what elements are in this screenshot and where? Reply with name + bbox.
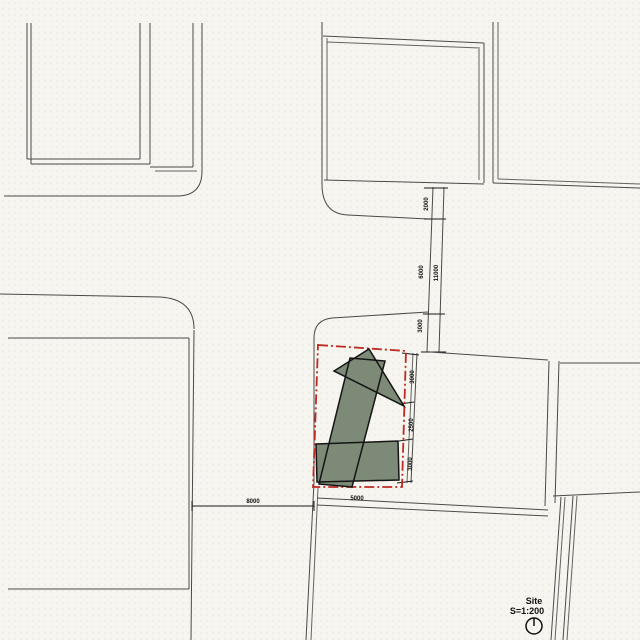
dimension-label: 3000 bbox=[410, 370, 416, 384]
building-footprint bbox=[316, 349, 404, 487]
drawing-title: Site bbox=[526, 596, 543, 606]
dimension-label: 5000 bbox=[350, 496, 364, 502]
dimension-bottom-road: 8000 5000 bbox=[192, 496, 364, 511]
dimension-label: 3000 bbox=[408, 457, 414, 471]
drawing-scale: S=1:200 bbox=[510, 606, 544, 616]
site-plan-canvas: 8000 5000 2000 6000 11000 3000 3000 2500… bbox=[0, 0, 640, 640]
lot-lines-top-left bbox=[4, 23, 202, 196]
dimension-label: 2500 bbox=[409, 418, 415, 432]
dimension-label: 2000 bbox=[424, 197, 430, 211]
site-plan-drawing: 8000 5000 2000 6000 11000 3000 3000 2500… bbox=[0, 0, 640, 640]
title-block: Site S=1:200 bbox=[510, 596, 544, 634]
dimension-label: 6000 bbox=[419, 265, 425, 279]
dimension-label: 3000 bbox=[418, 319, 424, 333]
north-arrow-icon bbox=[526, 618, 542, 634]
dimension-label: 8000 bbox=[246, 499, 260, 505]
lot-lines-top-right bbox=[322, 22, 640, 219]
walkway-lines-east bbox=[397, 187, 448, 483]
dimension-label: 11000 bbox=[434, 264, 440, 281]
